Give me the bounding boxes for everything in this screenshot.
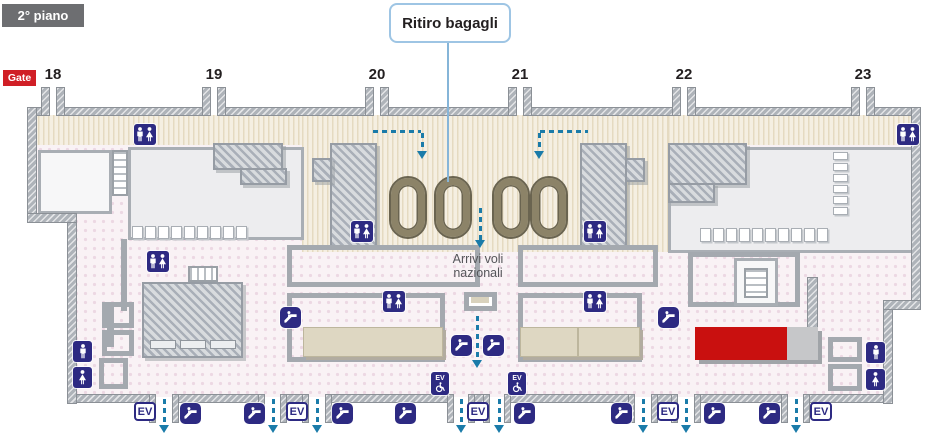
seat (197, 226, 208, 239)
elevator-label: EV (657, 402, 679, 421)
counter (520, 327, 578, 357)
block-slot (150, 340, 176, 349)
wall-top (688, 108, 859, 115)
seat (739, 228, 750, 242)
seat (713, 228, 724, 242)
exit-arrow-line (642, 399, 645, 425)
escalator-icon (759, 403, 780, 424)
gate-jamb (867, 88, 874, 115)
small-room (102, 330, 134, 356)
escalator-icon (332, 403, 353, 424)
exit-arrow-head (456, 425, 466, 433)
gate-flow-line (421, 133, 424, 151)
wall-jog (884, 301, 920, 309)
gate-jamb (673, 88, 680, 115)
wall-jog (28, 214, 76, 222)
seat (833, 163, 848, 171)
exit-stub (695, 395, 700, 422)
seat (833, 196, 848, 204)
exit-arrow-head (268, 425, 278, 433)
exit-arrow-head (494, 425, 504, 433)
accessible-elevator-icon: EV (508, 372, 526, 395)
gate-flow-head (417, 151, 427, 159)
wall-bottom (505, 395, 634, 402)
seat (778, 228, 789, 242)
escalator-icon (483, 335, 504, 356)
gate-number: 20 (362, 66, 392, 83)
baggage-carousel (436, 178, 470, 237)
service-room (518, 245, 658, 287)
escalator-icon (704, 403, 725, 424)
block-slot (180, 340, 206, 349)
seat (171, 226, 182, 239)
women-restroom-icon (73, 367, 92, 388)
arrivi-line1: Arrivi voli (436, 252, 520, 266)
wall-bottom (326, 395, 453, 402)
baggage-carousel (494, 178, 528, 237)
exit-stub (804, 395, 809, 422)
seat (236, 226, 247, 239)
exit-arrow-line (795, 399, 798, 425)
gate-number: 22 (669, 66, 699, 83)
small-room (828, 364, 862, 391)
wc-icon (134, 124, 156, 145)
seat (132, 226, 143, 239)
exit-arrow-head (681, 425, 691, 433)
escalator-icon (395, 403, 416, 424)
baggage-carousel (532, 178, 566, 237)
wall-bottom (695, 395, 787, 402)
flow-arrow-head (475, 240, 485, 248)
elevator-label: EV (134, 402, 156, 421)
gate-flow-line (538, 133, 541, 151)
exit-arrow-line (498, 399, 501, 425)
seat (804, 228, 815, 242)
highlighted-area (695, 327, 818, 360)
flow-arrow-head (472, 360, 482, 368)
seat (817, 228, 828, 242)
exterior-left (0, 222, 68, 433)
exterior-right (893, 309, 950, 433)
wc-icon (584, 291, 606, 312)
elevator-label: EV (286, 402, 308, 421)
women-restroom-icon (866, 369, 885, 390)
escalator-icon (280, 307, 301, 328)
exit-stub (173, 395, 178, 422)
wc-icon (147, 251, 169, 272)
exit-arrow-line (272, 399, 275, 425)
flow-arrow-line (476, 316, 479, 360)
block-gate22 (668, 143, 747, 185)
escalator-icon (658, 307, 679, 328)
exit-arrow-head (791, 425, 801, 433)
exit-arrow-line (460, 399, 463, 425)
wall-top (57, 108, 210, 115)
seat (145, 226, 156, 239)
wc-icon (584, 221, 606, 242)
seat (833, 207, 848, 215)
block-gate21-ext (625, 158, 645, 182)
wc-icon (383, 291, 405, 312)
baggage-carousel (391, 178, 425, 237)
gate-jamb (688, 88, 695, 115)
seat (158, 226, 169, 239)
block-gate19 (213, 143, 283, 170)
escalator-icon (611, 403, 632, 424)
gate-jamb (381, 88, 388, 115)
men-restroom-icon (73, 341, 92, 362)
block-gate22-ext (668, 183, 715, 203)
stairs-center-icon (188, 266, 218, 282)
gate-number: 21 (505, 66, 535, 83)
room-left-white (38, 150, 112, 214)
gate-jamb (852, 88, 859, 115)
wc-icon (351, 221, 373, 242)
highlighted-area-red (695, 327, 787, 360)
inner-wall (121, 239, 127, 311)
counter (578, 327, 640, 357)
wall-top (524, 108, 680, 115)
small-room (99, 358, 128, 389)
exit-arrow-line (316, 399, 319, 425)
elevator-label: EV (810, 402, 832, 421)
exit-stub (326, 395, 331, 422)
small-room (828, 337, 862, 362)
stairs-left-icon (112, 150, 128, 196)
floor-plan-map: 181920212223EVEVEVEVEVEVEV 2° piano Riti… (0, 0, 950, 433)
highlighted-area-gray (787, 327, 818, 360)
wall-top (218, 108, 373, 115)
callout-leader-line (447, 43, 449, 182)
wall-vertical (28, 108, 36, 221)
gate-flow-line (373, 130, 421, 133)
wall-bottom (804, 395, 888, 402)
small-room (102, 302, 134, 328)
gate-number: 19 (199, 66, 229, 83)
ev-text: EV (512, 375, 521, 382)
seat (184, 226, 195, 239)
arrivi-line2: nazionali (436, 266, 520, 280)
block-gate19-ext (240, 168, 287, 185)
escalator-icon (514, 403, 535, 424)
exit-arrow-line (685, 399, 688, 425)
floor-label: 2° piano (2, 4, 84, 27)
gate-jamb (42, 88, 49, 115)
gate-jamb (509, 88, 516, 115)
elevator-label: EV (467, 402, 489, 421)
baggage-claim-callout: Ritiro bagagli (389, 3, 511, 43)
gate-jamb (218, 88, 225, 115)
seat (223, 226, 234, 239)
wc-icon (897, 124, 919, 145)
exit-stub (505, 395, 510, 422)
info-booth-counter (471, 297, 489, 303)
counter (303, 327, 443, 357)
stairs-right-icon (744, 268, 768, 298)
escalator-icon (451, 335, 472, 356)
seat (791, 228, 802, 242)
exit-arrow-head (159, 425, 169, 433)
seat (700, 228, 711, 242)
seat (726, 228, 737, 242)
block-gate20-ext (312, 158, 332, 182)
escalator-icon (244, 403, 265, 424)
gate-number: 18 (38, 66, 68, 83)
gate-flow-line (540, 130, 588, 133)
exit-arrow-line (163, 399, 166, 425)
wall-bottom (68, 395, 155, 402)
wall-vertical (884, 301, 892, 403)
gate-jamb (203, 88, 210, 115)
exit-stub (448, 395, 453, 422)
seat (210, 226, 221, 239)
ev-text: EV (435, 375, 444, 382)
escalator-icon (180, 403, 201, 424)
gate-flow-head (534, 151, 544, 159)
seat (833, 185, 848, 193)
gate-tag: Gate (3, 70, 36, 86)
seat (752, 228, 763, 242)
accessible-elevator-icon: EV (431, 372, 449, 395)
exit-arrow-head (638, 425, 648, 433)
flow-arrow-line (479, 208, 482, 240)
gate-jamb (57, 88, 64, 115)
block-slot (210, 340, 236, 349)
gate-jamb (524, 88, 531, 115)
domestic-arrivals-label: Arrivi voli nazionali (436, 252, 520, 280)
seat (833, 174, 848, 182)
gate-jamb (366, 88, 373, 115)
exit-arrow-head (312, 425, 322, 433)
men-restroom-icon (866, 342, 885, 363)
exit-stub (782, 395, 787, 422)
seat (833, 152, 848, 160)
wall-bottom (173, 395, 264, 402)
gate-number: 23 (848, 66, 878, 83)
seat (765, 228, 776, 242)
